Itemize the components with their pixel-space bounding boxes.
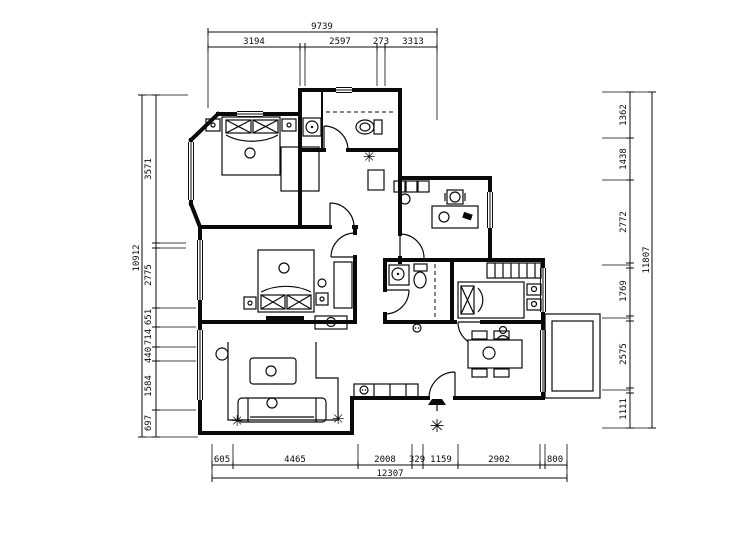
dim-right-seg: 1362 bbox=[619, 104, 629, 126]
dim-right-seg: 2772 bbox=[619, 211, 629, 233]
dim-right-seg: 1438 bbox=[619, 148, 629, 170]
entry-cabinet-icon bbox=[354, 384, 418, 397]
dim-top-seg: 2597 bbox=[329, 37, 351, 47]
single-bed-icon bbox=[458, 282, 524, 318]
wall-lamp-icon bbox=[216, 348, 228, 360]
dim-bottom-seg: 2008 bbox=[374, 455, 396, 465]
hall-cabinet-icon bbox=[368, 170, 384, 190]
toilet-icon bbox=[356, 120, 382, 134]
wardrobe-icon bbox=[334, 262, 352, 308]
plant-icon: ✳ bbox=[363, 148, 376, 166]
plant-icon: ✳ bbox=[231, 412, 244, 430]
desk-icon bbox=[432, 206, 478, 228]
closet-row-icon bbox=[487, 263, 541, 278]
dim-top-seg: 3313 bbox=[402, 37, 424, 47]
dim-right-total: 11807 bbox=[642, 246, 652, 273]
dim-left-total: 10912 bbox=[132, 244, 142, 271]
dim-left-seg: 440 bbox=[144, 347, 154, 363]
dim-bottom-seg: 329 bbox=[409, 455, 425, 465]
dim-right-seg: 2575 bbox=[619, 343, 629, 365]
dim-left-seg: 651 bbox=[144, 309, 154, 325]
bedroom-2 bbox=[244, 250, 352, 312]
dimension-chain-bottom: 605 4465 2008 329 1159 2902 800 12307 bbox=[212, 444, 567, 482]
toilet-icon bbox=[414, 264, 427, 288]
bathroom-1 bbox=[303, 112, 396, 136]
master-bedroom bbox=[206, 117, 319, 191]
sofa-icon bbox=[228, 342, 338, 422]
dim-bottom-seg: 605 bbox=[214, 455, 230, 465]
double-bed-icon bbox=[258, 250, 314, 312]
dim-bottom-seg: 2902 bbox=[488, 455, 510, 465]
dim-left-seg: 1584 bbox=[144, 375, 154, 397]
entry-plant-icon: ✳ bbox=[428, 399, 446, 437]
vent-icon bbox=[413, 324, 421, 332]
floor-plan-page: 9739 3194 2597 273 3313 605 4465 2008 32… bbox=[0, 0, 740, 555]
monitor-chair-icon bbox=[445, 190, 465, 204]
dim-bottom-total: 12307 bbox=[376, 469, 403, 479]
washbasin-icon bbox=[303, 118, 321, 136]
plant-icon: ✳ bbox=[332, 410, 345, 428]
dim-top-seg: 3194 bbox=[243, 37, 265, 47]
svg-text:✳: ✳ bbox=[429, 416, 444, 437]
floor-plan-canvas: 9739 3194 2597 273 3313 605 4465 2008 32… bbox=[0, 0, 740, 555]
dim-right-seg: 1769 bbox=[619, 280, 629, 302]
hallway: ✳ bbox=[363, 148, 384, 190]
dim-right-seg: 1111 bbox=[619, 398, 629, 420]
dining-area: ✳ bbox=[354, 327, 522, 438]
double-bed-icon bbox=[222, 117, 280, 175]
dimension-chain-right: 1362 1438 2772 1769 2575 1111 11807 bbox=[602, 92, 656, 428]
dim-bottom-seg: 1159 bbox=[430, 455, 452, 465]
balcony bbox=[545, 314, 600, 398]
dim-left-seg: 3571 bbox=[144, 158, 154, 180]
bedroom-3 bbox=[458, 263, 541, 318]
dim-bottom-seg: 4465 bbox=[284, 455, 306, 465]
dining-table-icon bbox=[468, 340, 522, 368]
dim-top-total: 9739 bbox=[311, 22, 333, 32]
coffee-table-icon bbox=[250, 358, 296, 384]
dim-bottom-seg: 800 bbox=[547, 455, 563, 465]
tv-icon bbox=[266, 316, 304, 322]
nightstand-icon bbox=[527, 284, 541, 310]
dim-left-seg: 2775 bbox=[144, 264, 154, 286]
living-room: ✳ ✳ bbox=[216, 316, 347, 430]
washbasin-icon bbox=[389, 265, 409, 285]
person-icon bbox=[497, 327, 509, 340]
dim-left-seg: 697 bbox=[144, 415, 154, 431]
dim-left-seg: 714 bbox=[144, 329, 154, 345]
study-room bbox=[394, 181, 478, 228]
dim-top-seg: 273 bbox=[373, 37, 389, 47]
